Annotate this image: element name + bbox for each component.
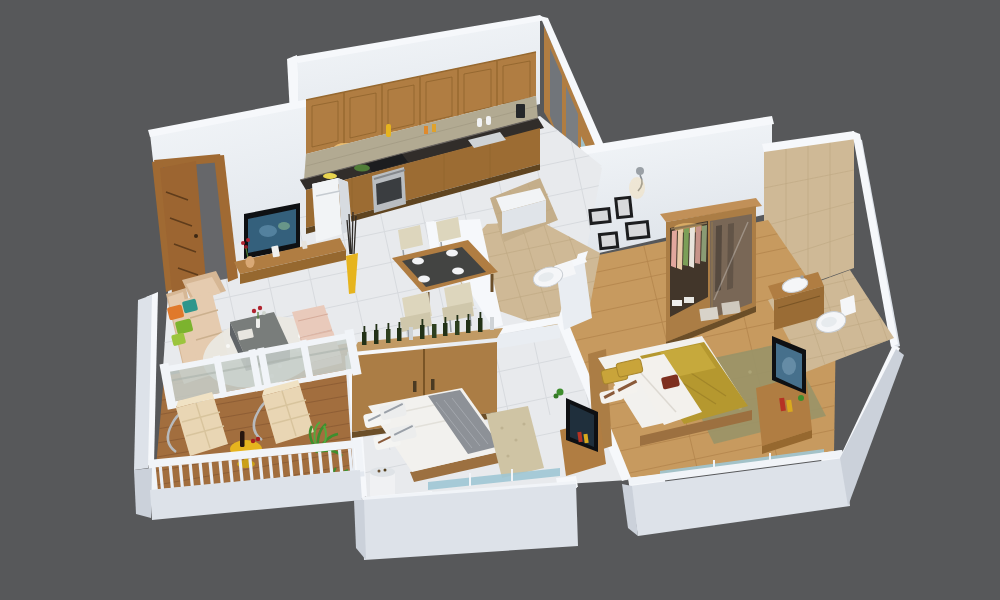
candle (424, 126, 428, 134)
west-lower-face (134, 468, 152, 518)
white-jar (477, 118, 482, 127)
yellow-bottle (386, 124, 391, 137)
plant-icon (798, 395, 804, 401)
folded-clothes (684, 297, 694, 303)
clay-vase (246, 256, 255, 268)
herb-pot (354, 165, 370, 172)
wine-bottle (240, 431, 245, 447)
refrigerator (312, 178, 352, 242)
apartment-3d-scene (0, 0, 1000, 600)
wardrobe-handle (431, 379, 435, 390)
plate (446, 250, 458, 257)
faucet-icon (800, 275, 804, 279)
floor-plan-render (0, 0, 1000, 600)
lemon-bowl (323, 173, 337, 179)
white-floor-vase (370, 467, 395, 497)
plate (412, 258, 424, 265)
candle (432, 124, 436, 132)
wine-glass (256, 437, 260, 441)
white-jar (486, 116, 491, 125)
wine-glass (251, 439, 255, 443)
storage-basket (721, 301, 740, 315)
plant-icon (554, 394, 559, 399)
door-knob-icon (194, 234, 198, 238)
wardrobe-handle (413, 381, 417, 392)
folded-clothes (672, 300, 682, 306)
coffee-maker (516, 104, 525, 118)
entrance-door (152, 154, 238, 293)
plate (452, 268, 464, 275)
plate (418, 276, 430, 283)
storage-basket (699, 307, 718, 321)
